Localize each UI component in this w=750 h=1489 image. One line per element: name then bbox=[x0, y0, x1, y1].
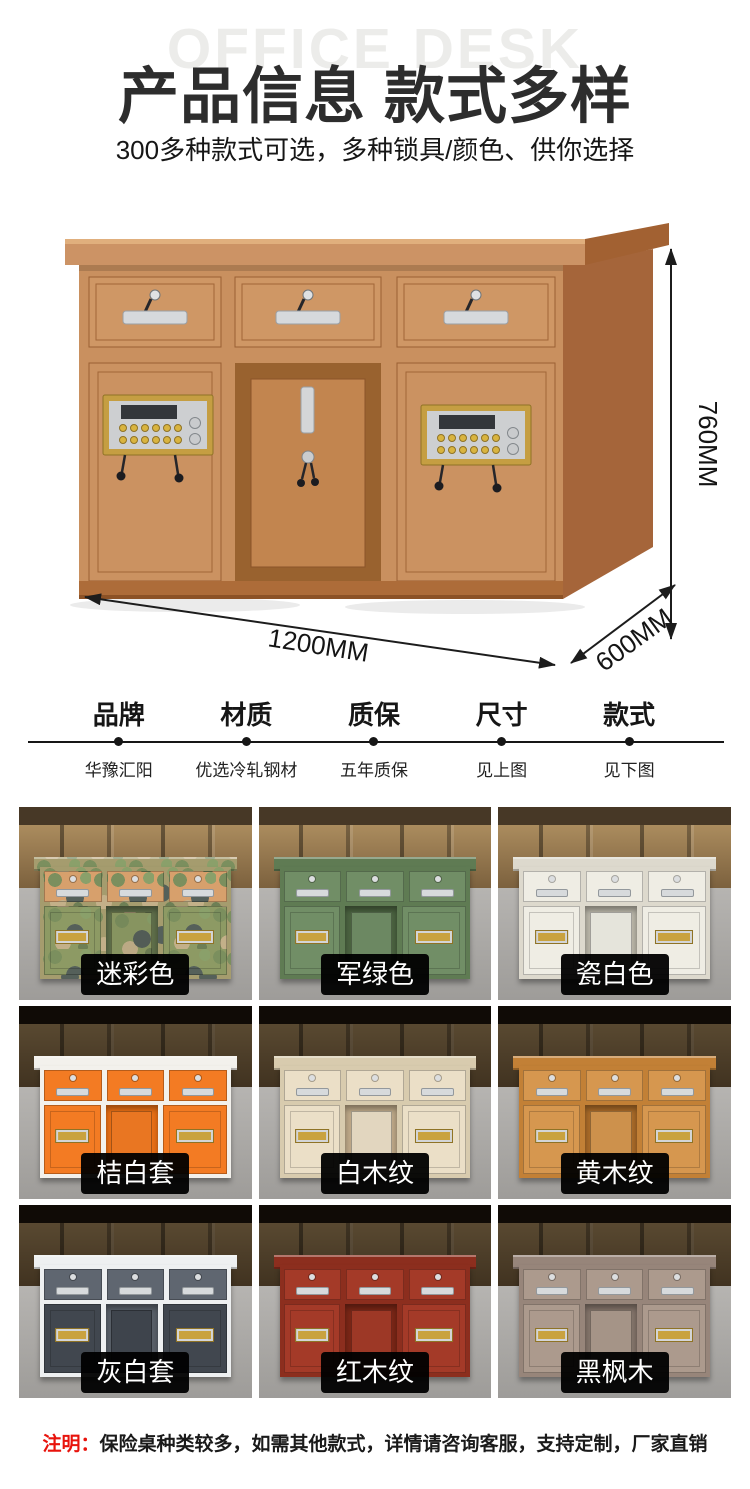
variant-label: 黑枫木 bbox=[561, 1352, 669, 1393]
spec-strip: 品牌 华豫汇阳 材质 优选冷轧钢材 质保 五年质保 尺寸 见上图 款式 bbox=[0, 695, 750, 791]
page-title: 产品信息 款式多样 bbox=[0, 46, 750, 135]
variant-label: 白木纹 bbox=[321, 1153, 429, 1194]
variant-cell-porcelain-white: 瓷白色 bbox=[498, 807, 731, 1000]
spec-dot bbox=[242, 737, 251, 746]
note-prefix: 注明： bbox=[42, 1434, 99, 1455]
dimension-height: 760MM bbox=[693, 401, 723, 488]
variant-cell-yellow-woodgrain: 黄木纹 bbox=[498, 1006, 731, 1199]
variant-label: 灰白套 bbox=[81, 1352, 189, 1393]
note-text: 保险桌种类较多，如需其他款式，详情请咨询客服，支持定制，厂家直销 bbox=[100, 1434, 708, 1455]
variant-grid: 迷彩色 军绿色 瓷白色 bbox=[19, 807, 731, 1398]
variant-cell-red-woodgrain: 红木纹 bbox=[259, 1205, 492, 1398]
spec-item-size: 尺寸 见上图 bbox=[438, 695, 566, 781]
variant-label: 瓷白色 bbox=[561, 954, 669, 995]
spec-dot bbox=[625, 737, 634, 746]
variant-cell-camouflage: 迷彩色 bbox=[19, 807, 252, 1000]
variant-cell-army-green: 军绿色 bbox=[259, 807, 492, 1000]
spec-item-style: 款式 见下图 bbox=[565, 695, 693, 781]
variant-cell-orange-white: 桔白套 bbox=[19, 1006, 252, 1199]
dimension-width: 1200MM bbox=[266, 622, 371, 667]
desk-body bbox=[65, 223, 669, 599]
spec-item-material: 材质 优选冷轧钢材 bbox=[183, 695, 311, 781]
product-info-page: OFFICE DESK 产品信息 款式多样 300多种款式可选，多种锁具/颜色、… bbox=[0, 0, 750, 1489]
variant-label: 迷彩色 bbox=[81, 954, 189, 995]
drawer-handles bbox=[123, 311, 508, 324]
spec-dot bbox=[369, 737, 378, 746]
variant-label: 桔白套 bbox=[81, 1153, 189, 1194]
spec-item-warranty: 质保 五年质保 bbox=[310, 695, 438, 781]
spec-item-brand: 品牌 华豫汇阳 bbox=[55, 695, 183, 781]
spec-dot bbox=[497, 737, 506, 746]
hero-product-image: 760MM 1200MM 600MM bbox=[25, 195, 725, 685]
bottom-note: 注明：保险桌种类较多，如需其他款式，详情请咨询客服，支持定制，厂家直销 bbox=[0, 1429, 750, 1456]
spec-dot bbox=[114, 737, 123, 746]
page-subtitle: 300多种款式可选，多种锁具/颜色、供你选择 bbox=[0, 130, 750, 167]
variant-cell-gray-white: 灰白套 bbox=[19, 1205, 252, 1398]
variant-label: 军绿色 bbox=[321, 954, 429, 995]
variant-label: 红木纹 bbox=[321, 1352, 429, 1393]
desk-illustration: 760MM 1200MM 600MM bbox=[25, 195, 725, 685]
variant-cell-white-woodgrain: 白木纹 bbox=[259, 1006, 492, 1199]
variant-cell-black-maple: 黑枫木 bbox=[498, 1205, 731, 1398]
top-drawers bbox=[89, 277, 555, 347]
variant-label: 黄木纹 bbox=[561, 1153, 669, 1194]
